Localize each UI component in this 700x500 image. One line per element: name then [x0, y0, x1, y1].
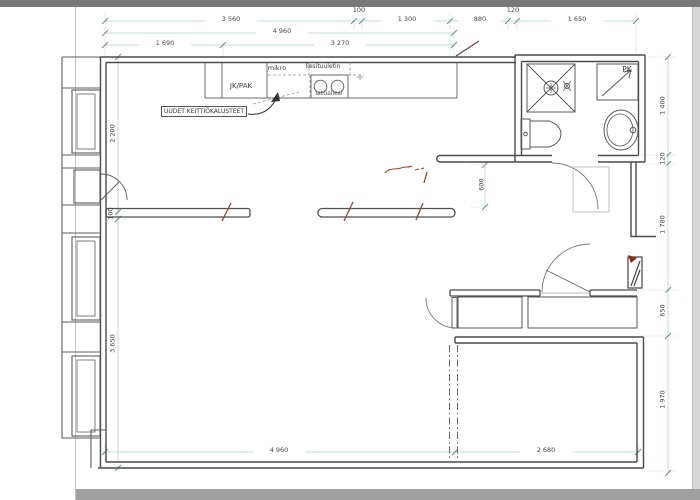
wardrobe [458, 297, 522, 328]
redline-marks [222, 166, 427, 221]
stove-label: lattialiesi [304, 91, 354, 98]
dimension-label: 4 960 [256, 28, 308, 35]
dimension-label: 120 [496, 7, 530, 14]
wardrobe [528, 297, 637, 328]
removed-wall-dashed [450, 345, 458, 461]
door-leaf [452, 298, 457, 329]
kitchen-note-callout: UUDET KEITTIÖKALUSTEET [161, 106, 247, 117]
dimension-label: 1 300 [381, 16, 433, 23]
dimension-label: 4 960 [253, 447, 305, 454]
toilet-bowl [530, 121, 561, 147]
interior-wall-segments [106, 209, 455, 218]
outer-walls [98, 57, 656, 468]
dimension-label: 3 270 [314, 40, 366, 47]
bathroom-door-swing [552, 163, 598, 209]
dimension-lines [95, 14, 676, 475]
bathroom-door-leaf [573, 167, 609, 212]
door-swing-arc [542, 244, 590, 292]
window [72, 237, 100, 320]
dimension-label: 1 400 [659, 85, 666, 127]
dimension-label: 3 560 [205, 16, 257, 23]
dimension-label: 880 [459, 16, 501, 23]
floor-plan-page: 3 560 100 1 300 880 120 1 650 4 960 1 69… [0, 0, 700, 500]
hood-label: liesituuletin [296, 64, 350, 71]
balcony-door [74, 170, 100, 203]
dimension-ticks [102, 18, 671, 476]
door-swing-arc [426, 298, 456, 328]
dimension-label: 3 650 [109, 323, 116, 365]
dimension-label: 600 [478, 167, 485, 203]
microwave-label: mikro [260, 65, 294, 72]
dimension-label: 100 [107, 201, 114, 227]
floor-plan-drawing [0, 0, 700, 500]
entry-door-leaf [456, 41, 479, 56]
wall-segment [106, 209, 250, 218]
door-leaf [546, 270, 590, 292]
washing-machine-label: PK [615, 66, 639, 74]
dimension-label: 1 780 [659, 204, 666, 246]
dimension-label: 650 [659, 293, 666, 329]
dimension-label: 2 200 [109, 113, 116, 155]
dimension-label: 1 970 [659, 379, 666, 421]
note-arrow [248, 92, 280, 114]
dimension-label: 1 650 [551, 16, 603, 23]
dimension-label: 2 680 [520, 447, 572, 454]
door-swing-arc [101, 174, 127, 200]
dimension-label: 100 [345, 7, 373, 14]
left-facade [62, 57, 127, 468]
window [72, 356, 100, 436]
redline-arrow [628, 255, 637, 263]
toilet-tank [521, 119, 530, 149]
window [72, 90, 100, 153]
wall-segment [318, 209, 455, 218]
fridge-label: JK/PAK [217, 83, 265, 91]
hall-and-closets [426, 244, 642, 328]
dimension-label: 120 [659, 144, 666, 174]
dimension-label: 1 690 [139, 40, 191, 47]
bathroom [437, 55, 645, 212]
